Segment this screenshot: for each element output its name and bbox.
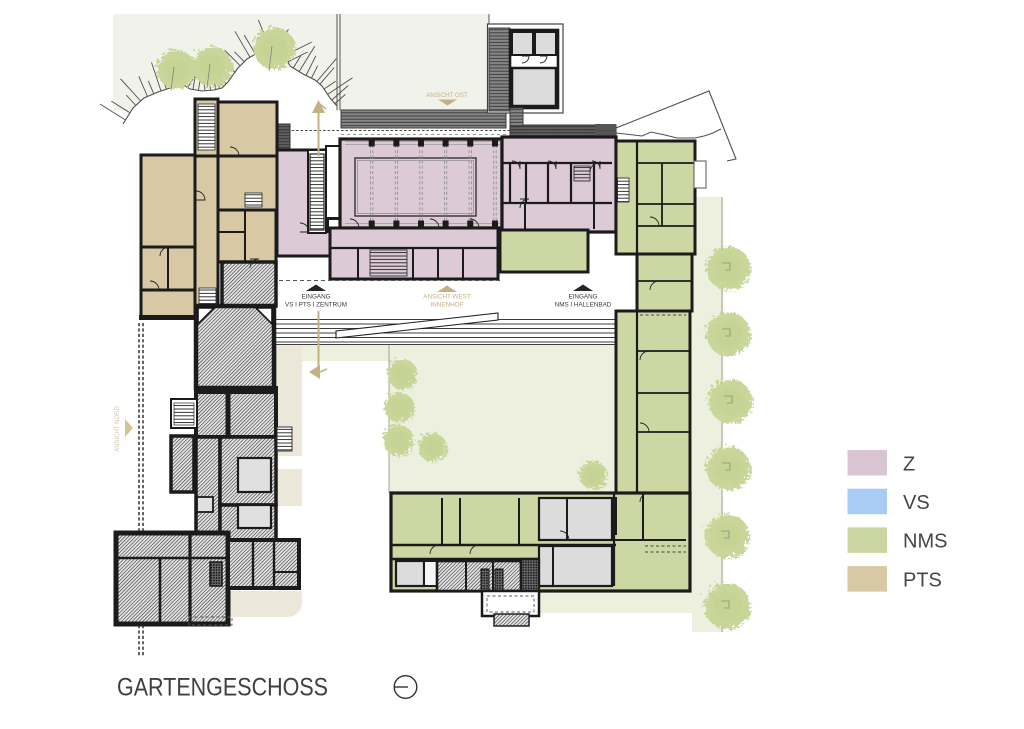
svg-text:EINGANG: EINGANG — [301, 294, 330, 301]
svg-text:VS: VS — [903, 492, 930, 514]
svg-text:ANSICHT WEST: ANSICHT WEST — [423, 294, 471, 301]
svg-text:VS I PTS I ZENTRUM: VS I PTS I ZENTRUM — [285, 302, 347, 309]
svg-text:GARTENGESCHOSS: GARTENGESCHOSS — [117, 675, 328, 702]
svg-text:NMS: NMS — [903, 531, 947, 553]
svg-text:NMS I HALLENBAD: NMS I HALLENBAD — [555, 302, 612, 309]
svg-text:ANSICHT OST: ANSICHT OST — [426, 92, 468, 99]
svg-text:Z: Z — [903, 453, 915, 475]
svg-text:INNENHOF: INNENHOF — [431, 302, 464, 309]
svg-text:ANSICHT NORD: ANSICHT NORD — [115, 406, 121, 452]
svg-text:PTS: PTS — [903, 569, 942, 591]
svg-text:EINGANG: EINGANG — [568, 294, 597, 301]
